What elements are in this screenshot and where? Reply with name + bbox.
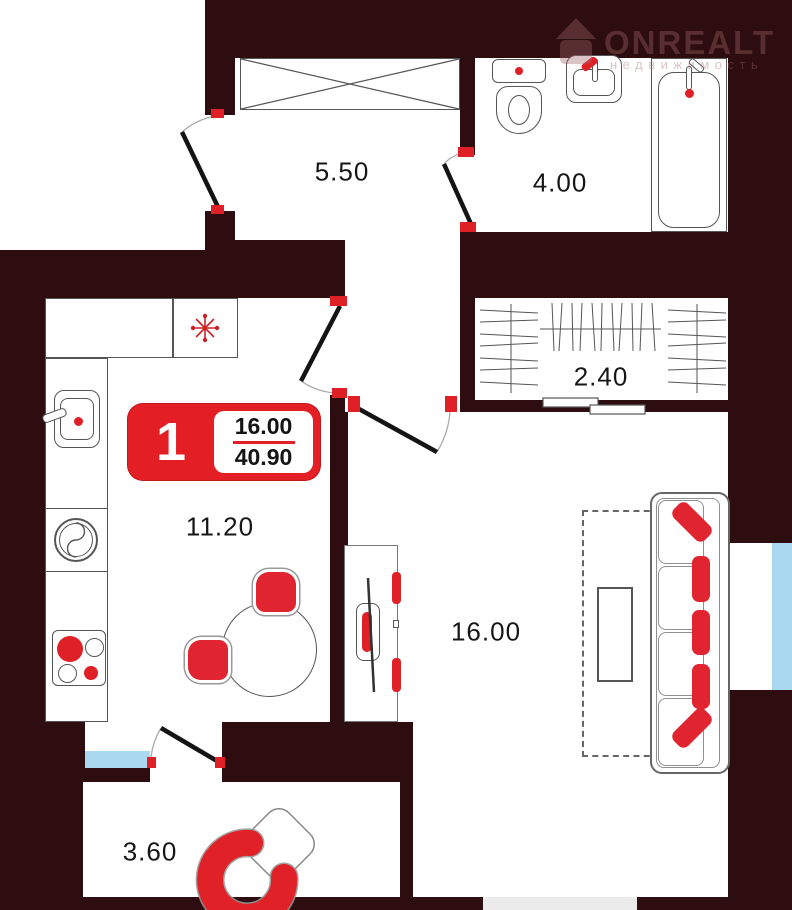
stove-burner	[85, 638, 104, 657]
balcony-window-recess	[85, 722, 150, 751]
bottom-window	[483, 897, 637, 910]
door-jamb	[211, 109, 224, 118]
entrance-door-opening	[205, 115, 236, 211]
hall-closet	[240, 58, 460, 110]
door-jamb	[458, 147, 474, 157]
badge-total-area: 40.90	[235, 445, 293, 470]
toilet-button	[515, 67, 523, 75]
badge-areas-panel: 16.00 40.90	[214, 411, 313, 473]
coffee-table	[597, 587, 633, 682]
door-jamb	[445, 396, 457, 412]
door-jamb	[460, 222, 476, 232]
room-label-wardrobe: 2.40	[574, 362, 629, 393]
bathroom-door-opening	[460, 155, 476, 231]
stove-burner	[58, 664, 77, 683]
logo-house-body	[560, 40, 592, 64]
fridge-icon	[173, 298, 238, 358]
kitchen-counter-top	[45, 298, 173, 358]
kitchen-faucet-dot	[74, 417, 83, 426]
room-label-living: 16.00	[451, 617, 521, 648]
washer-drum-inner	[59, 523, 93, 557]
badge-living-area: 16.00	[235, 414, 293, 439]
balcony-window-glass	[85, 751, 150, 768]
tv-bracket-pad	[362, 612, 372, 652]
room-label-bathroom: 4.00	[533, 168, 588, 199]
right-window-glass	[772, 543, 792, 690]
floor-plan: 5.50 4.00 2.40 11.20 16.00 3.60 1 16.00 …	[0, 0, 792, 910]
logo-house-icon	[556, 18, 596, 39]
right-window-sill	[730, 543, 772, 690]
stove-burner-small	[84, 666, 98, 680]
dining-table	[222, 602, 317, 697]
tv-stand-handle	[393, 620, 399, 628]
sofa-pillow	[692, 610, 710, 655]
living-door-opening	[358, 396, 448, 414]
balcony-door-opening	[150, 722, 222, 782]
door-jamb	[348, 396, 360, 412]
floor-corridor	[345, 240, 460, 412]
door-jamb	[332, 388, 347, 398]
tv-speaker	[392, 572, 401, 604]
bathtub-drain	[685, 89, 694, 98]
badge-rooms-count: 1	[128, 404, 214, 480]
toilet-bowl-inner	[508, 95, 530, 125]
stove-burner-large	[57, 636, 83, 662]
dining-chair	[188, 640, 228, 680]
door-jamb	[330, 296, 347, 306]
room-label-hallway: 5.50	[315, 157, 370, 188]
door-jamb	[215, 757, 225, 768]
door-jamb	[147, 757, 156, 768]
dining-chair	[256, 572, 296, 612]
room-label-balcony: 3.60	[123, 837, 178, 868]
sofa-pillow	[692, 556, 710, 602]
door-jamb	[211, 205, 224, 214]
area-badge: 1 16.00 40.90	[128, 404, 320, 480]
tv-speaker	[392, 658, 401, 692]
kitchen-door-opening	[330, 305, 348, 395]
outside-area	[0, 0, 205, 250]
brand-tagline: недвижимость	[610, 57, 763, 72]
room-label-kitchen: 11.20	[186, 512, 254, 543]
sofa-pillow	[692, 664, 710, 709]
